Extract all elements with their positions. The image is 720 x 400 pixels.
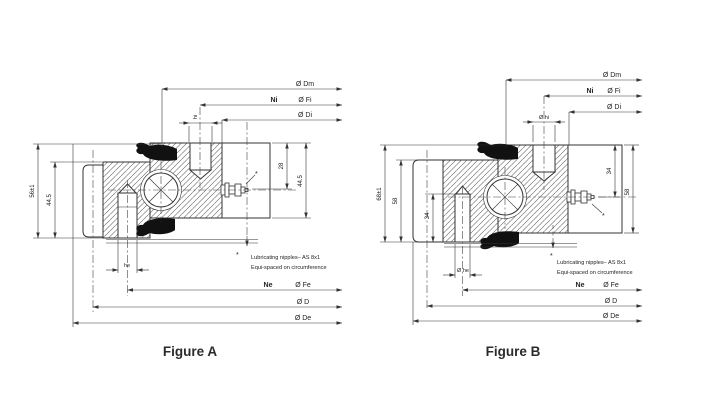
figure-a-caption: Figure A: [163, 344, 218, 359]
dim-label-58L-b: 58: [393, 197, 399, 204]
dim-label-68-b: 68±1: [377, 187, 383, 201]
bearing-drawing: * Ø Dm Ni Ø Fi Ø Di hi 5: [0, 0, 720, 400]
dim-label-445R-a: 44.5: [298, 175, 304, 187]
dim-label-d-b: Ø D: [605, 298, 617, 305]
inner-ring-hole-a: [190, 143, 211, 170]
note-line1-a: Lubricating nipples– AS 8x1: [251, 255, 320, 261]
dim-label-he-a: he: [124, 263, 130, 269]
dim-label-ni-b: Ni: [587, 88, 594, 95]
inner-ring-extension-a: [222, 143, 270, 218]
dim-label-di-a: Ø Di: [298, 112, 312, 119]
dim-label-28-a: 28: [279, 162, 285, 169]
dim-label-he-b: Ø he: [457, 268, 469, 274]
dim-label-445L-a: 44.5: [47, 194, 53, 206]
figure-a-drawing: * Ø Dm Ni Ø Fi Ø Di hi 5: [30, 81, 342, 359]
dim-label-hi-b: Ø hi: [539, 115, 549, 121]
dim-label-ni-a: Ni: [271, 97, 278, 104]
dim-label-fi-b: Ø Fi: [607, 88, 621, 95]
seal-top-b: [477, 142, 518, 160]
dim-label-d-a: Ø D: [297, 299, 309, 306]
dim-label-56-a: 56±1: [30, 184, 36, 198]
dim-label-fi-a: Ø Fi: [298, 97, 312, 104]
dim-label-fe-a: Ø Fe: [295, 282, 311, 289]
dim-label-de-b: Ø De: [603, 313, 619, 320]
dim-label-de-a: Ø De: [295, 315, 311, 322]
dim-label-hi-a: hi: [193, 115, 199, 119]
dim-label-ne-b: Ne: [576, 282, 585, 289]
figure-b-caption: Figure B: [486, 344, 541, 359]
note-line1-b: Lubricating nipples– AS 8x1: [557, 260, 626, 266]
note-marker-b: *: [550, 253, 553, 260]
note-line2-a: Equi-spaced on circumference: [251, 265, 327, 271]
nipple-star-b: *: [602, 213, 605, 220]
note-line2-b: Equi-spaced on circumference: [557, 270, 633, 276]
dim-label-fe-b: Ø Fe: [603, 282, 619, 289]
figure-b-drawing: * Ø Dm Ni Ø Fi Ø Di Ø hi: [377, 72, 642, 359]
dim-label-34R-b: 34: [607, 167, 613, 174]
dim-label-dm-b: Ø Dm: [603, 72, 621, 79]
dim-label-di-b: Ø Di: [607, 104, 621, 111]
inner-ring-extension-b: [568, 145, 622, 233]
outer-ring-flange-b: [413, 160, 443, 242]
dim-label-dm-a: Ø Dm: [296, 81, 314, 88]
drawing-canvas: * Ø Dm Ni Ø Fi Ø Di hi 5: [0, 0, 720, 400]
nipple-star-a: *: [255, 171, 258, 178]
dim-label-ne-a: Ne: [264, 282, 273, 289]
dim-label-34L-b: 34: [425, 212, 431, 219]
note-marker-a: *: [236, 252, 239, 259]
dim-label-58R-b: 58: [625, 188, 631, 195]
